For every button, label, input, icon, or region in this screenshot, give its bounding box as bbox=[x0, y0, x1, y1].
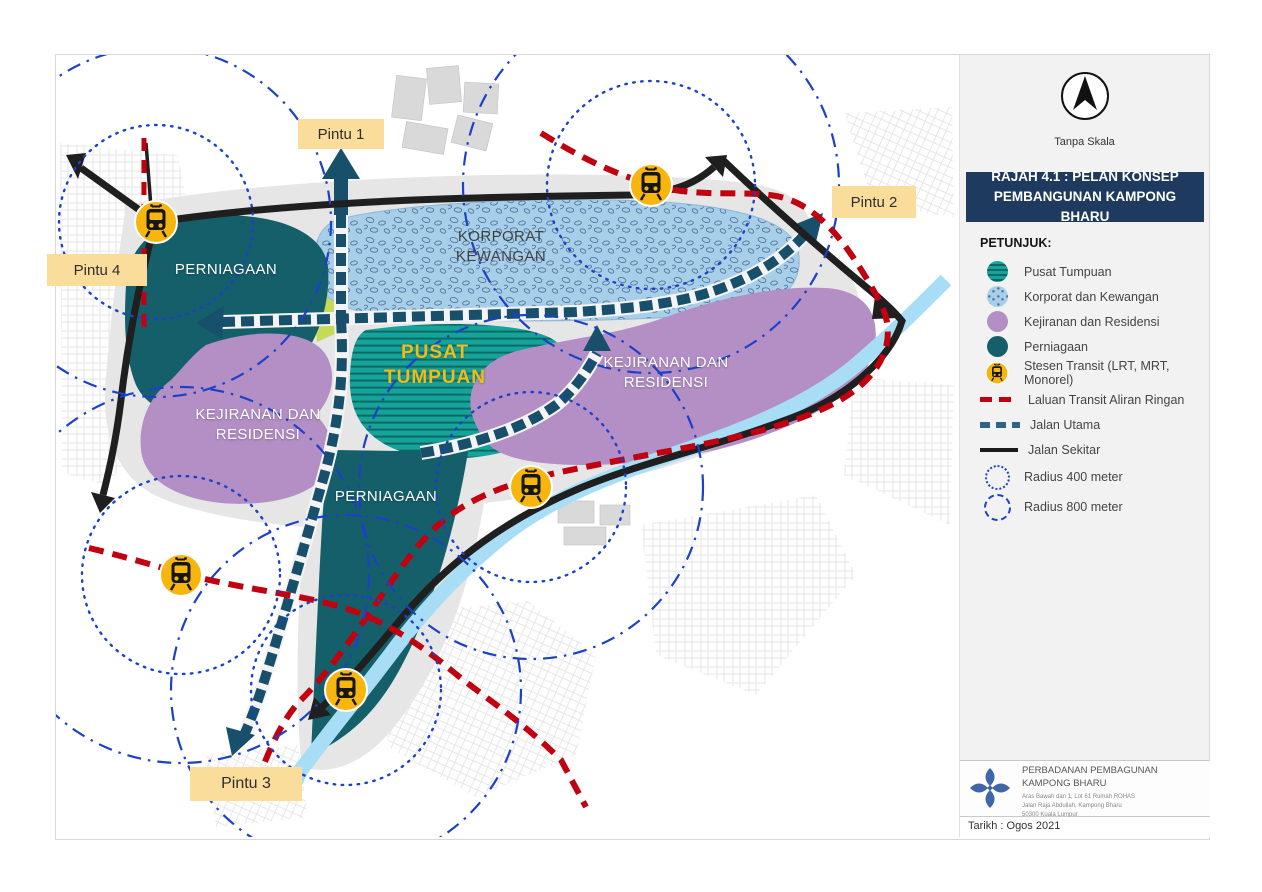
station-s bbox=[325, 669, 367, 711]
transit-station-icon bbox=[985, 361, 1009, 385]
north-arrow-block: Tanpa Skala bbox=[960, 69, 1209, 148]
plan-sheet: PERNIAGAAN KORPORAT KEWANGAN PUSAT TUMPU… bbox=[55, 54, 1210, 840]
date-row: Tarikh : Ogos 2021 bbox=[960, 817, 1210, 837]
laluan-transit-swatch bbox=[980, 397, 1018, 402]
legend-item-korporat-kewangan: Korporat dan Kewangan bbox=[980, 284, 1201, 309]
jalan-sekitar-swatch bbox=[980, 448, 1018, 452]
address-line-1: Aras Bawah dan 1, Lot 61 Rumah ROHAS bbox=[1022, 793, 1194, 802]
jalan-utama-swatch bbox=[980, 422, 1020, 428]
zone-label-perniagaan-nw: PERNIAGAAN bbox=[141, 260, 311, 280]
gate-arrow-pintu1 bbox=[322, 148, 360, 179]
pusat-tumpuan-swatch bbox=[987, 261, 1008, 282]
legend-item-laluan-transit: Laluan Transit Aliran Ringan bbox=[980, 387, 1201, 412]
legend-panel: Tanpa Skala RAJAH 4.1 : PELAN KONSEP PEM… bbox=[959, 55, 1209, 837]
organization-logo: KAMPONG BHARU bbox=[966, 765, 1014, 812]
legend: PETUNJUK: Pusat Tumpuan Korporat dan Kew… bbox=[980, 236, 1201, 522]
legend-heading: PETUNJUK: bbox=[980, 236, 1201, 250]
zone-label-pusat-tumpuan: PUSAT TUMPUAN bbox=[378, 341, 492, 390]
organization-box: KAMPONG BHARU PERBADANAN PEMBAGUNAN KAMP… bbox=[960, 760, 1210, 817]
station-ne bbox=[630, 164, 672, 206]
legend-item-stesen-transit: Stesen Transit (LRT, MRT, Monorel) bbox=[980, 359, 1201, 387]
legend-item-radius-400: Radius 400 meter bbox=[980, 462, 1201, 492]
organization-name: PERBADANAN PEMBAGUNAN KAMPONG BHARU bbox=[1022, 765, 1194, 791]
zone-label-perniagaan-tengah: PERNIAGAAN bbox=[301, 487, 471, 507]
scale-note: Tanpa Skala bbox=[960, 136, 1209, 148]
gate-label-pintu-4: Pintu 4 bbox=[47, 254, 147, 286]
legend-item-radius-800: Radius 800 meter bbox=[980, 492, 1201, 522]
radius-800-swatch bbox=[984, 494, 1011, 521]
gate-label-pintu-2: Pintu 2 bbox=[832, 186, 916, 218]
zone-label-korporat: KORPORAT KEWANGAN bbox=[441, 227, 561, 266]
address-line-2: Jalan Raja Abdullah, Kampong Bharu bbox=[1022, 802, 1194, 811]
legend-item-jalan-sekitar: Jalan Sekitar bbox=[980, 437, 1201, 462]
zone-label-kejiranan-timur: KEJIRANAN DAN RESIDENSI bbox=[581, 353, 751, 392]
gate-label-pintu-1: Pintu 1 bbox=[298, 119, 384, 149]
concept-map-drawing bbox=[56, 55, 959, 837]
kejiranan-residensi-swatch bbox=[987, 311, 1008, 332]
kampong-bharu-logo-icon bbox=[967, 765, 1013, 811]
legend-item-kejiranan-residensi: Kejiranan dan Residensi bbox=[980, 309, 1201, 334]
perniagaan-swatch bbox=[987, 336, 1008, 357]
legend-item-pusat-tumpuan: Pusat Tumpuan bbox=[980, 259, 1201, 284]
legend-item-perniagaan: Perniagaan bbox=[980, 334, 1201, 359]
concept-map: PERNIAGAAN KORPORAT KEWANGAN PUSAT TUMPU… bbox=[56, 55, 959, 837]
figure-title: RAJAH 4.1 : PELAN KONSEP PEMBANGUNAN KAM… bbox=[966, 172, 1204, 222]
station-sw bbox=[160, 554, 202, 596]
station-nw bbox=[135, 201, 177, 243]
station-center bbox=[510, 466, 552, 508]
korporat-kewangan-swatch bbox=[987, 286, 1008, 307]
zone-label-kejiranan-barat: KEJIRANAN DAN RESIDENSI bbox=[173, 405, 343, 444]
north-arrow-icon bbox=[1053, 69, 1117, 125]
gate-label-pintu-3: Pintu 3 bbox=[190, 767, 302, 801]
radius-400-swatch bbox=[985, 465, 1010, 490]
legend-item-jalan-utama: Jalan Utama bbox=[980, 412, 1201, 437]
